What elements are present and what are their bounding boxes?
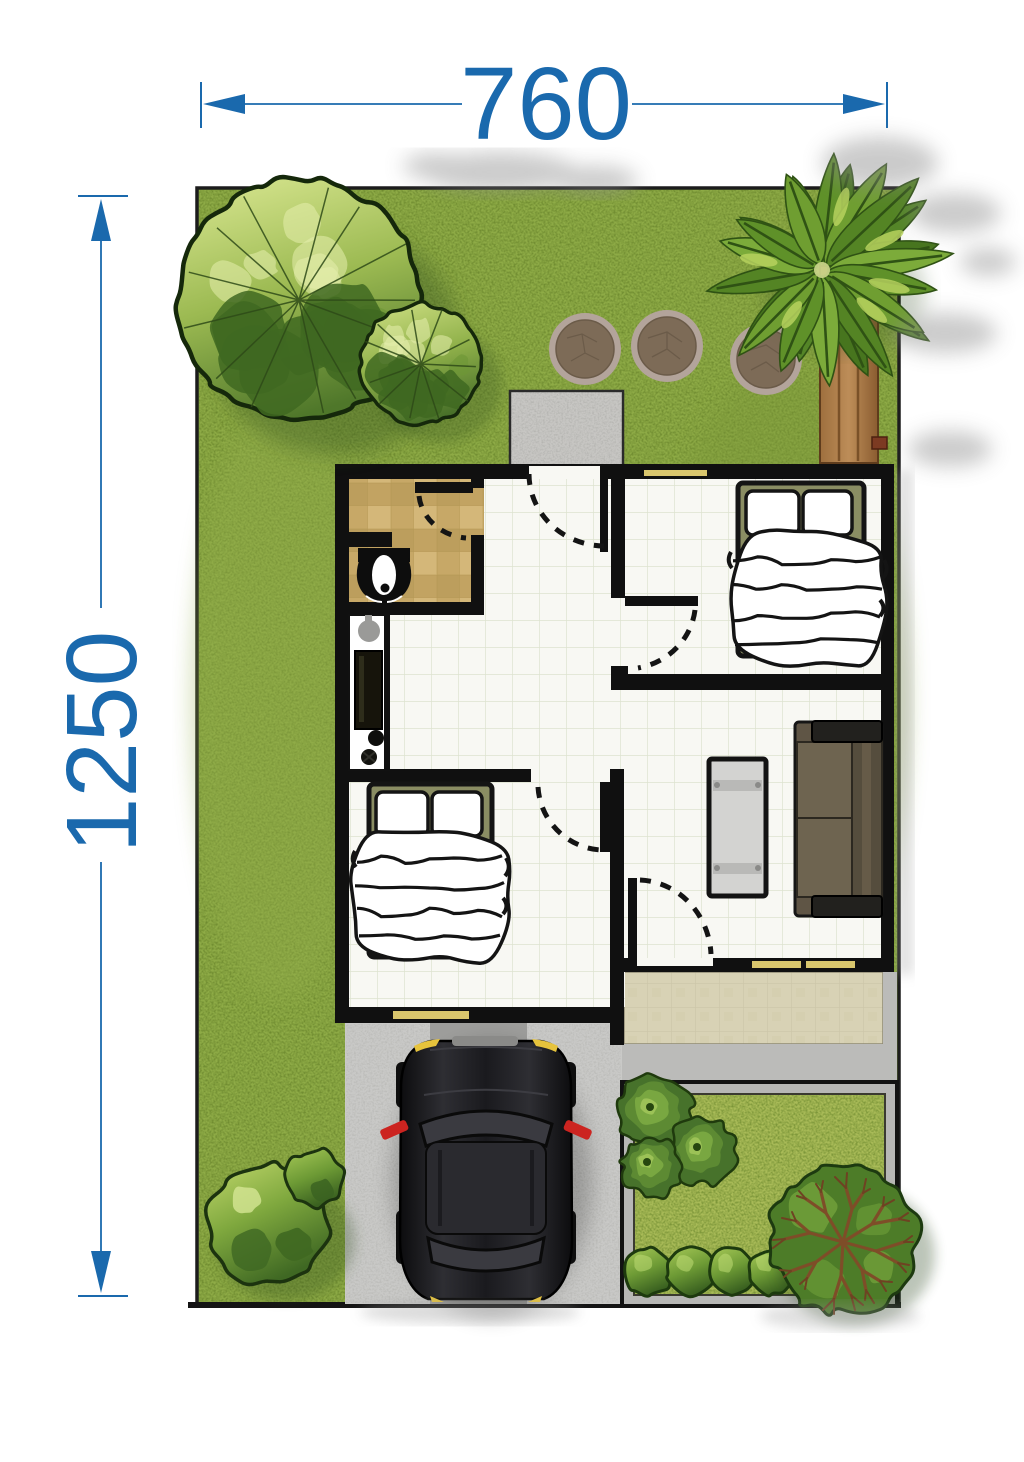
svg-text:1250: 1250 bbox=[46, 631, 158, 853]
svg-text:760: 760 bbox=[460, 46, 632, 161]
